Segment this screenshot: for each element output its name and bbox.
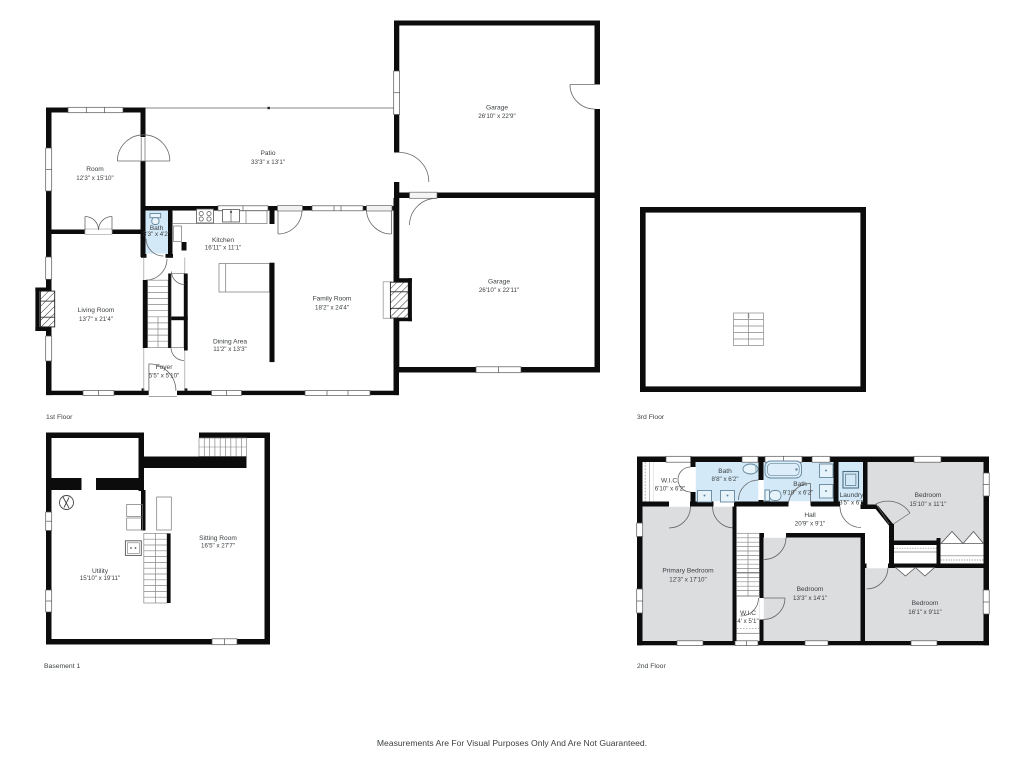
svg-text:15'10" x 19'11": 15'10" x 19'11" bbox=[80, 575, 120, 582]
svg-text:13'7" x 21'4": 13'7" x 21'4" bbox=[79, 316, 113, 323]
svg-text:4' x 5'1": 4' x 5'1" bbox=[737, 618, 758, 625]
svg-text:Bath: Bath bbox=[793, 481, 807, 488]
svg-text:12'3" x 17'10": 12'3" x 17'10" bbox=[669, 577, 706, 584]
svg-text:Dining Area: Dining Area bbox=[213, 339, 247, 346]
svg-text:Bedroom: Bedroom bbox=[915, 492, 942, 499]
svg-text:W.I.C.: W.I.C. bbox=[661, 478, 679, 485]
svg-text:Living Room: Living Room bbox=[78, 307, 115, 314]
svg-text:Room: Room bbox=[86, 166, 104, 173]
svg-text:Kitchen: Kitchen bbox=[212, 237, 234, 244]
svg-text:W.I.C: W.I.C bbox=[740, 610, 756, 617]
svg-text:5'5" x 5'10": 5'5" x 5'10" bbox=[149, 373, 180, 380]
svg-text:26'10" x 22'11": 26'10" x 22'11" bbox=[479, 287, 519, 294]
svg-text:Patio: Patio bbox=[260, 150, 275, 157]
svg-text:Laundry: Laundry bbox=[840, 492, 865, 499]
svg-text:Sitting Room: Sitting Room bbox=[199, 535, 237, 542]
svg-text:3'3" x 4'2": 3'3" x 4'2" bbox=[143, 231, 170, 238]
svg-text:Bedroom: Bedroom bbox=[912, 600, 939, 607]
svg-text:6'10" x 6'2": 6'10" x 6'2" bbox=[655, 486, 686, 493]
svg-text:16'1" x 9'11": 16'1" x 9'11" bbox=[908, 609, 941, 616]
svg-text:15'10" x 11'1": 15'10" x 11'1" bbox=[910, 501, 947, 508]
svg-text:Hall: Hall bbox=[804, 512, 816, 519]
svg-text:Measurements Are For Visual Pu: Measurements Are For Visual Purposes Onl… bbox=[377, 738, 647, 748]
svg-text:Basement 1: Basement 1 bbox=[44, 663, 80, 670]
svg-text:18'2" x 24'4": 18'2" x 24'4" bbox=[315, 305, 349, 312]
svg-text:12'3" x 15'10": 12'3" x 15'10" bbox=[76, 175, 113, 182]
svg-text:Family Room: Family Room bbox=[313, 296, 352, 303]
svg-text:16'5" x 27'7": 16'5" x 27'7" bbox=[201, 543, 235, 550]
svg-text:Bath: Bath bbox=[718, 468, 732, 475]
svg-text:11'2" x 13'3": 11'2" x 13'3" bbox=[213, 346, 246, 353]
svg-text:Foyer: Foyer bbox=[156, 364, 174, 371]
svg-text:Primary Bedroom: Primary Bedroom bbox=[662, 568, 714, 575]
svg-text:26'10" x 22'9": 26'10" x 22'9" bbox=[478, 113, 515, 120]
svg-text:Bedroom: Bedroom bbox=[797, 586, 824, 593]
svg-text:9'10" x 6'2": 9'10" x 6'2" bbox=[783, 490, 814, 497]
svg-text:Garage: Garage bbox=[488, 279, 510, 286]
svg-text:Utility: Utility bbox=[92, 568, 109, 575]
svg-text:1st Floor: 1st Floor bbox=[46, 414, 73, 421]
svg-text:2nd Floor: 2nd Floor bbox=[637, 663, 666, 670]
svg-text:13'3" x 14'1": 13'3" x 14'1" bbox=[793, 595, 827, 602]
svg-text:20'9" x 9'1": 20'9" x 9'1" bbox=[795, 521, 826, 528]
svg-text:8'8" x 6'2": 8'8" x 6'2" bbox=[711, 476, 738, 483]
svg-text:16'11" x 11'1": 16'11" x 11'1" bbox=[205, 245, 241, 252]
svg-text:3rd Floor: 3rd Floor bbox=[637, 414, 665, 421]
svg-text:33'3" x 13'1": 33'3" x 13'1" bbox=[251, 159, 285, 166]
svg-text:Garage: Garage bbox=[486, 105, 508, 112]
